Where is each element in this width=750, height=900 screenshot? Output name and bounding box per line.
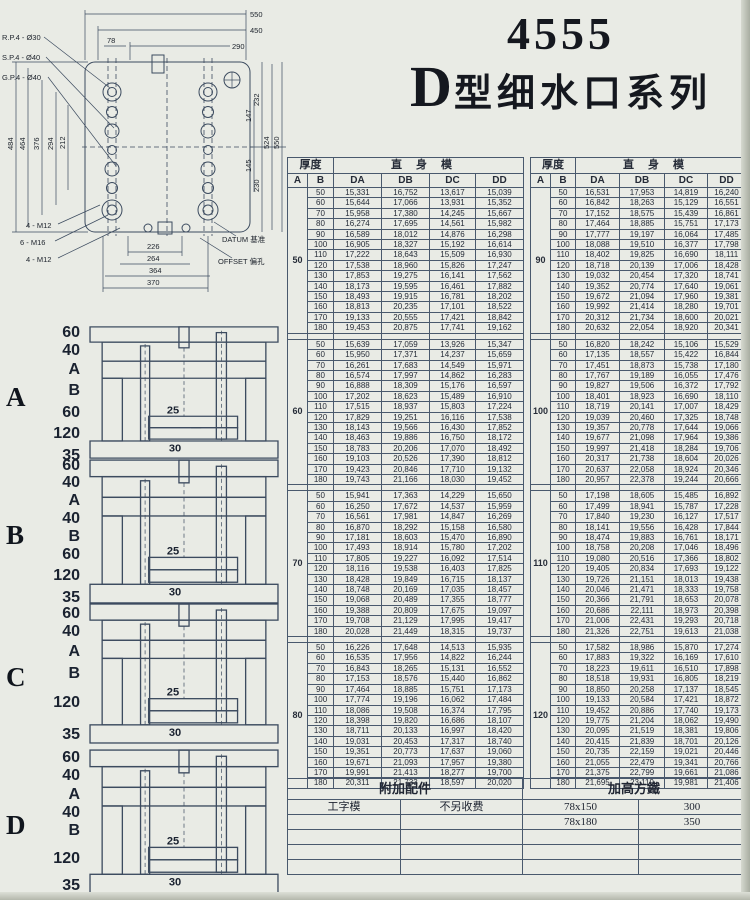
cell-dd: 17,173 (476, 684, 524, 694)
cell-b: 150 (308, 595, 334, 605)
cell-da: 17,181 (334, 533, 382, 543)
table-row: 14019,67721,09817,96419,386 (531, 433, 746, 443)
cell-b: 70 (551, 512, 576, 522)
table-row: 14018,74820,16917,03518,457 (288, 585, 524, 595)
table-row: 15019,99721,41818,28419,706 (531, 443, 746, 453)
cell-dd: 16,580 (476, 522, 524, 532)
cell-db: 18,557 (620, 350, 665, 360)
diagram-letter-B: B (6, 520, 24, 551)
cell-dc: 15,489 (430, 391, 476, 401)
table-row: 13018,42819,84916,71518,137 (288, 574, 524, 584)
cell-db: 19,506 (620, 381, 665, 391)
cell-da: 19,351 (334, 747, 382, 757)
cell-db: 20,489 (382, 595, 430, 605)
cell-db: 19,611 (620, 663, 665, 673)
cell-da: 16,531 (576, 188, 620, 198)
table-row: 10018,75820,20817,04618,496 (531, 543, 746, 553)
cell-dc: 17,007 (665, 402, 708, 412)
cell-db: 21,839 (620, 736, 665, 746)
cell-da: 16,250 (334, 501, 382, 511)
cell-da: 15,331 (334, 188, 382, 198)
col-header-a: A (531, 174, 551, 188)
diagram-A: A6040AB6012035 25 30 (0, 325, 287, 460)
cell-dc: 18,381 (665, 726, 708, 736)
table-row: 15018,78320,20617,07018,492 (288, 443, 524, 453)
cell-dd: 21,038 (708, 626, 746, 636)
cell-b: 100 (308, 543, 334, 553)
cell-dd: 16,910 (476, 391, 524, 401)
cell-db: 17,371 (382, 350, 430, 360)
cell-db: 22,751 (620, 626, 665, 636)
table-row: 6017,49918,94115,78717,228 (531, 501, 746, 511)
cell-dd: 19,758 (708, 585, 746, 595)
cell-thickness-a: 120 (531, 643, 551, 789)
cell-b: 140 (308, 736, 334, 746)
diagram-dim-label: B (38, 529, 80, 545)
cell-b: 50 (308, 188, 334, 198)
cell-dd: 18,111 (708, 250, 746, 260)
cell-dd: 16,240 (708, 188, 746, 198)
cell-da: 17,829 (334, 412, 382, 422)
cell-dd: 16,861 (708, 208, 746, 218)
table-row: 10018,08819,51016,37717,798 (531, 240, 746, 250)
diagram-B: B6040A40B6012035 25 30 (0, 458, 287, 605)
table-row: 12019,03920,46017,32518,748 (531, 412, 746, 422)
cell-b: 160 (308, 605, 334, 615)
cell-db: 20,258 (620, 684, 665, 694)
cell-db: 18,327 (382, 240, 430, 250)
cell-b: 170 (551, 767, 576, 777)
cell-db: 17,059 (382, 339, 430, 349)
table-row: 12018,11619,53816,40317,825 (288, 564, 524, 574)
table-row: 9016,58918,01214,87616,298 (288, 229, 524, 239)
col-header-db: DB (620, 174, 665, 188)
cell-thickness-a: 60 (288, 339, 308, 485)
col-header-dd: DD (708, 174, 746, 188)
cell-da: 19,352 (576, 281, 620, 291)
cell-dd: 17,274 (708, 643, 746, 653)
cell-dc: 15,870 (665, 643, 708, 653)
cell-da: 20,735 (576, 747, 620, 757)
cell-da: 19,677 (576, 433, 620, 443)
cell-b: 140 (551, 585, 576, 595)
cell-dd: 17,898 (708, 663, 746, 673)
cell-b: 140 (551, 433, 576, 443)
cell-dd: 15,659 (476, 350, 524, 360)
cell-db: 18,309 (382, 381, 430, 391)
cell-db: 18,575 (620, 208, 665, 218)
mold-section-drawing: 25 30 (88, 458, 280, 605)
header-straight-mold: 直身模 (576, 158, 746, 174)
cell-dd: 17,844 (708, 522, 746, 532)
cell-b: 170 (308, 464, 334, 474)
table-row: 6016,84218,26315,12916,551 (531, 198, 746, 208)
cell-dc: 17,317 (430, 736, 476, 746)
table-row: 16020,31721,73818,60420,026 (531, 454, 746, 464)
cell-dc: 17,995 (430, 616, 476, 626)
cell-dc: 19,293 (665, 616, 708, 626)
acc-cell (401, 845, 523, 860)
cell-b: 160 (551, 454, 576, 464)
cell-dd: 19,806 (708, 726, 746, 736)
cell-b: 70 (551, 360, 576, 370)
cell-b: 120 (551, 715, 576, 725)
table-row: 10016,90518,32715,19216,614 (288, 240, 524, 250)
pin-circles-right (198, 83, 218, 220)
cell-dc: 16,116 (430, 412, 476, 422)
table-row: 18020,95722,37819,24420,666 (531, 474, 746, 484)
cell-dd: 15,971 (476, 360, 524, 370)
cell-db: 18,605 (620, 491, 665, 501)
cell-dd: 17,795 (476, 705, 524, 715)
dim-145: 145 (244, 159, 253, 172)
table-row: 13019,35720,77817,64419,066 (531, 422, 746, 432)
cell-dd: 15,667 (476, 208, 524, 218)
leader-label-gp: G.P.4 - Ø40 (2, 73, 41, 82)
table-row: 605015,63917,05913,92615,347 (288, 339, 524, 349)
cell-dc: 14,237 (430, 350, 476, 360)
cell-dc: 16,690 (665, 391, 708, 401)
cell-b: 180 (308, 474, 334, 484)
cell-thickness-a: 70 (288, 491, 308, 637)
cell-dd: 16,551 (708, 198, 746, 208)
cell-dc: 16,141 (430, 271, 476, 281)
table-row: 8018,14119,55616,42817,844 (531, 522, 746, 532)
cell-dd: 18,457 (476, 585, 524, 595)
cell-db: 18,885 (382, 684, 430, 694)
diagram-dim-label: 60 (38, 458, 80, 474)
cell-da: 17,135 (576, 350, 620, 360)
cell-dc: 15,439 (665, 208, 708, 218)
cell-dd: 19,097 (476, 605, 524, 615)
mold-section-drawing: 25 30 (88, 748, 280, 895)
cell-dc: 19,244 (665, 474, 708, 484)
cell-db: 22,378 (620, 474, 665, 484)
cell-dc: 17,390 (430, 454, 476, 464)
cell-da: 18,398 (334, 715, 382, 725)
table-row: 15020,73522,15919,02120,446 (531, 747, 746, 757)
cell-da: 21,326 (576, 626, 620, 636)
cell-da: 17,840 (576, 512, 620, 522)
cell-dd: 17,792 (708, 381, 746, 391)
cell-b: 130 (551, 574, 576, 584)
cell-dc: 15,176 (430, 381, 476, 391)
cell-da: 18,223 (576, 663, 620, 673)
inner-dim-30: 30 (169, 727, 181, 739)
cell-db: 19,595 (382, 281, 430, 291)
cell-db: 19,820 (382, 715, 430, 725)
header-thickness: 厚度 (531, 158, 576, 174)
cell-da: 19,423 (334, 464, 382, 474)
table-row: 18020,02821,44918,31519,737 (288, 626, 524, 636)
cell-db: 19,508 (382, 705, 430, 715)
cell-db: 19,197 (620, 229, 665, 239)
dim-264: 264 (147, 254, 160, 263)
acc-cell (401, 815, 523, 830)
cell-db: 17,672 (382, 501, 430, 511)
cell-da: 18,088 (576, 240, 620, 250)
cell-dd: 20,718 (708, 616, 746, 626)
cell-b: 150 (551, 292, 576, 302)
cell-da: 19,452 (576, 705, 620, 715)
cell-da: 18,141 (576, 522, 620, 532)
cell-da: 19,671 (334, 757, 382, 767)
cell-db: 18,265 (382, 663, 430, 673)
dim-294: 294 (46, 137, 55, 150)
cell-dd: 19,122 (708, 564, 746, 574)
table-row: 705015,94117,36314,22915,650 (288, 491, 524, 501)
cell-da: 20,415 (576, 736, 620, 746)
cell-dd: 16,890 (476, 533, 524, 543)
cell-b: 180 (551, 626, 576, 636)
cell-b: 110 (551, 250, 576, 260)
cell-dc: 15,751 (665, 219, 708, 229)
cell-dc: 15,129 (665, 198, 708, 208)
cell-db: 19,275 (382, 271, 430, 281)
table-row: 11018,08619,50816,37417,795 (288, 705, 524, 715)
cell-da: 16,870 (334, 522, 382, 532)
cell-db: 22,159 (620, 747, 665, 757)
cell-dd: 16,614 (476, 240, 524, 250)
table-row: 10017,20218,62315,48916,910 (288, 391, 524, 401)
cell-dd: 19,700 (476, 767, 524, 777)
cell-da: 15,941 (334, 491, 382, 501)
dim-290: 290 (232, 42, 245, 51)
cell-db: 18,885 (620, 219, 665, 229)
cell-b: 150 (308, 292, 334, 302)
cell-b: 150 (551, 595, 576, 605)
cell-dc: 19,613 (665, 626, 708, 636)
cell-da: 15,958 (334, 208, 382, 218)
cell-dc: 16,430 (430, 422, 476, 432)
cell-da: 19,708 (334, 616, 382, 626)
cell-db: 17,363 (382, 491, 430, 501)
cell-dd: 20,021 (708, 312, 746, 322)
cell-da: 19,068 (334, 595, 382, 605)
cell-da: 18,116 (334, 564, 382, 574)
diagram-dim-label: 40 (38, 624, 80, 640)
cell-dc: 18,600 (665, 312, 708, 322)
page-title-number: 4555 (378, 8, 744, 60)
cell-dd: 15,982 (476, 219, 524, 229)
cell-db: 18,937 (382, 402, 430, 412)
cell-dd: 17,610 (708, 653, 746, 663)
table-row: 8017,15318,57615,44016,862 (288, 674, 524, 684)
cell-da: 16,561 (334, 512, 382, 522)
cell-dd: 20,766 (708, 757, 746, 767)
cell-db: 18,603 (382, 533, 430, 543)
cell-b: 160 (551, 605, 576, 615)
table-row: 16019,10320,52617,39018,812 (288, 454, 524, 464)
cell-da: 17,774 (334, 695, 382, 705)
diagram-dim-label: 60 (38, 405, 80, 421)
cell-dc: 18,701 (665, 736, 708, 746)
cell-b: 140 (551, 281, 576, 291)
acc-cell: 300 (639, 800, 746, 815)
cell-db: 22,111 (620, 605, 665, 615)
cell-dd: 20,341 (708, 323, 746, 333)
cell-da: 19,992 (576, 302, 620, 312)
cell-db: 19,510 (620, 240, 665, 250)
series-letter-d: D (410, 54, 454, 119)
table-row: 6016,53517,95614,82216,244 (288, 653, 524, 663)
cell-dc: 17,137 (665, 684, 708, 694)
diagram-dim-label: 40 (38, 805, 80, 821)
cell-dd: 19,417 (476, 616, 524, 626)
col-header-b: B (551, 174, 576, 188)
cell-db: 18,576 (382, 674, 430, 684)
table-row: 12017,53818,96015,82617,247 (288, 260, 524, 270)
cell-da: 16,274 (334, 219, 382, 229)
spec-table-left: 厚度直身模ABDADBDCDD505015,33116,75213,61715,… (287, 157, 524, 789)
table-row: 18020,63222,05418,92020,341 (531, 323, 746, 333)
cell-dd: 16,269 (476, 512, 524, 522)
cell-b: 110 (551, 553, 576, 563)
cell-dc: 16,690 (665, 250, 708, 260)
table-row: 7017,15218,57515,43916,861 (531, 208, 746, 218)
label-4-m12-b: 4 - M12 (26, 255, 51, 264)
cell-db: 18,263 (620, 198, 665, 208)
cell-dd: 20,346 (708, 464, 746, 474)
cell-dd: 18,748 (708, 412, 746, 422)
cell-db: 18,986 (620, 643, 665, 653)
cell-b: 130 (551, 271, 576, 281)
cell-dc: 17,675 (430, 605, 476, 615)
cell-da: 19,031 (334, 736, 382, 746)
table-row: 11017,80519,22716,09217,514 (288, 553, 524, 563)
table-row: 7016,26117,68314,54915,971 (288, 360, 524, 370)
cell-b: 160 (551, 757, 576, 767)
acc-cell (523, 860, 639, 875)
cell-b: 150 (308, 747, 334, 757)
table-row: 17019,42320,84617,71019,132 (288, 464, 524, 474)
cell-db: 19,322 (620, 653, 665, 663)
header-thickness: 厚度 (288, 158, 334, 174)
diagram-dim-label: A (38, 493, 80, 509)
cell-dc: 14,822 (430, 653, 476, 663)
col-header-dd: DD (476, 174, 524, 188)
cell-dd: 19,490 (708, 715, 746, 725)
cell-db: 21,413 (382, 767, 430, 777)
cell-b: 110 (551, 402, 576, 412)
cell-dc: 16,169 (665, 653, 708, 663)
cell-dd: 18,110 (708, 391, 746, 401)
acc-cell (288, 860, 401, 875)
cell-b: 100 (551, 543, 576, 553)
cell-dd: 18,107 (476, 715, 524, 725)
cell-dc: 17,637 (430, 747, 476, 757)
table-row: 12019,77521,20418,06219,490 (531, 715, 746, 725)
cell-db: 20,778 (620, 422, 665, 432)
acc-cell (523, 845, 639, 860)
cell-dc: 13,617 (430, 188, 476, 198)
cell-dd: 18,137 (476, 574, 524, 584)
cell-b: 120 (308, 412, 334, 422)
acc-cell: 78x180 (523, 815, 639, 830)
cell-thickness-a: 110 (531, 491, 551, 637)
cell-dc: 16,805 (665, 674, 708, 684)
cell-dc: 15,131 (430, 663, 476, 673)
cell-db: 21,414 (620, 302, 665, 312)
table-row: 14018,17319,59516,46117,882 (288, 281, 524, 291)
table-row: 6017,13518,55715,42216,844 (531, 350, 746, 360)
table-row: 12017,82919,25116,11617,538 (288, 412, 524, 422)
cell-dc: 18,973 (665, 605, 708, 615)
cell-b: 170 (308, 616, 334, 626)
cell-b: 110 (308, 553, 334, 563)
cell-db: 22,431 (620, 616, 665, 626)
cell-da: 17,805 (334, 553, 382, 563)
cell-db: 20,555 (382, 312, 430, 322)
cell-db: 21,094 (620, 292, 665, 302)
cell-da: 21,006 (576, 616, 620, 626)
inner-dim-25: 25 (167, 545, 179, 557)
diagram-dim-label: 120 (38, 851, 80, 867)
dim-230: 230 (252, 179, 261, 192)
table-row: 14020,04621,47118,33319,758 (531, 585, 746, 595)
cell-b: 100 (308, 240, 334, 250)
cell-da: 20,312 (576, 312, 620, 322)
cell-dc: 16,377 (665, 240, 708, 250)
table-row: 16018,81320,23517,10118,522 (288, 302, 524, 312)
cell-dd: 16,283 (476, 370, 524, 380)
cell-dd: 20,398 (708, 605, 746, 615)
cell-dc: 15,485 (665, 491, 708, 501)
table-row: 13018,14319,56616,43017,852 (288, 422, 524, 432)
cell-da: 18,428 (334, 574, 382, 584)
cell-dd: 17,798 (708, 240, 746, 250)
cell-db: 21,418 (620, 443, 665, 453)
cell-dc: 15,803 (430, 402, 476, 412)
cell-b: 80 (308, 522, 334, 532)
cell-dc: 16,997 (430, 726, 476, 736)
acc-cell (401, 860, 523, 875)
cell-da: 19,775 (576, 715, 620, 725)
cell-da: 16,226 (334, 643, 382, 653)
diagram-dim-label: 40 (38, 768, 80, 784)
cell-b: 130 (308, 574, 334, 584)
acc-cell: 78x150 (523, 800, 639, 815)
cell-b: 50 (551, 188, 576, 198)
cell-b: 50 (308, 339, 334, 349)
cell-thickness-a: 80 (288, 643, 308, 789)
title-block: 4555 D型细水口系列 (378, 8, 744, 121)
cell-b: 90 (308, 229, 334, 239)
cell-thickness-a: 90 (531, 188, 551, 334)
cell-b: 80 (551, 219, 576, 229)
cell-dd: 19,386 (708, 433, 746, 443)
cell-db: 17,956 (382, 653, 430, 663)
cell-b: 130 (551, 726, 576, 736)
cell-dd: 18,492 (476, 443, 524, 453)
cell-dc: 14,229 (430, 491, 476, 501)
cell-db: 16,752 (382, 188, 430, 198)
table-row: 12018,39819,82016,68618,107 (288, 715, 524, 725)
cell-db: 20,516 (620, 553, 665, 563)
cell-db: 20,460 (620, 412, 665, 422)
cell-db: 21,204 (620, 715, 665, 725)
cell-da: 16,888 (334, 381, 382, 391)
cell-da: 16,843 (334, 663, 382, 673)
cell-db: 17,997 (382, 370, 430, 380)
table-row: 9018,47419,88316,76118,171 (531, 533, 746, 543)
cell-dc: 16,092 (430, 553, 476, 563)
cell-dc: 16,062 (430, 695, 476, 705)
acc-cell (288, 830, 401, 845)
cell-dc: 19,021 (665, 747, 708, 757)
cell-dc: 18,333 (665, 585, 708, 595)
cell-da: 18,719 (576, 402, 620, 412)
